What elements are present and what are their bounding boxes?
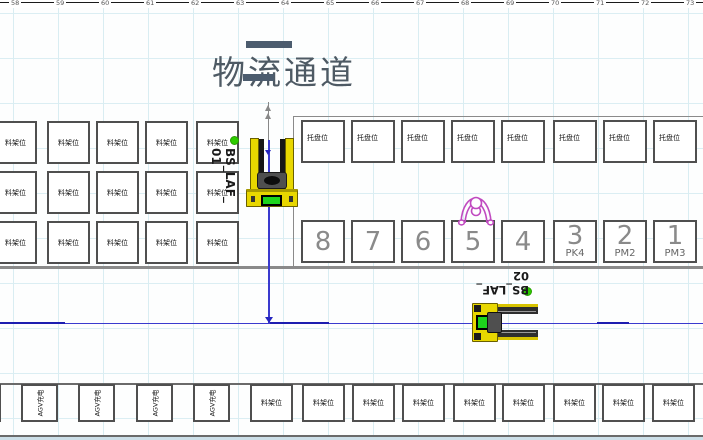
pallet-slot[interactable]: 托盘位 <box>351 120 395 163</box>
box-label: 料架位 <box>555 386 594 420</box>
fork-line <box>498 311 536 312</box>
box-label: 料架位 <box>98 123 137 162</box>
slot-content: 4 <box>503 222 543 261</box>
box-label: 料架位 <box>354 386 393 420</box>
stacker-machine-bs-laf-02[interactable] <box>472 302 538 343</box>
agv-charge-slot[interactable]: AGV充电 <box>136 384 173 422</box>
agv-charge-slot[interactable]: AGV充电 <box>0 384 1 422</box>
box-label: 托盘位 <box>407 133 428 143</box>
aisle-divider-line <box>0 266 703 269</box>
slot-content: 6 <box>403 222 443 261</box>
box-label: 托盘位 <box>659 133 680 143</box>
ruler-tick-64: 64 <box>279 0 291 7</box>
slot-number: 6 <box>415 230 432 254</box>
base-knob <box>251 196 255 202</box>
agv-charge-label: AGV充电 <box>149 390 159 417</box>
fork-line <box>498 332 536 333</box>
logistics-channel-title: 物流通道 <box>212 46 356 94</box>
operator-foot-left <box>459 220 465 225</box>
numbered-slot-7[interactable]: 7 <box>351 220 395 263</box>
slot-content: 2PM2 <box>605 222 645 261</box>
base-knob <box>289 196 293 202</box>
machine-label-bs-laf-02[interactable]: BS_LAF_ 02 <box>479 269 529 297</box>
machine-base <box>246 189 298 207</box>
box-label: 料架位 <box>147 123 186 162</box>
slot-number: 1 <box>667 224 684 248</box>
body-corner <box>474 305 481 312</box>
rack-slot[interactable]: 料架位 <box>96 121 139 164</box>
box-label: AGV充电 <box>138 386 171 420</box>
box-label: AGV充电 <box>195 386 228 420</box>
ruler-tick-66: 66 <box>369 0 381 7</box>
box-label: 托盘位 <box>307 133 328 143</box>
box-label: 料架位 <box>49 123 88 162</box>
box-label: 料架位 <box>304 386 343 420</box>
agv-path-segment <box>0 322 65 324</box>
box-label: 料架位 <box>252 386 291 420</box>
status-dot-bs-laf-01 <box>230 136 239 145</box>
stacker-machine-bs-laf-01[interactable] <box>246 102 298 207</box>
status-screen <box>261 195 282 206</box>
box-label: 托盘位 <box>559 133 580 143</box>
box-label: 料架位 <box>0 173 35 212</box>
conveyor-bar[interactable] <box>243 74 274 81</box>
box-label: 托盘位 <box>609 133 630 143</box>
pallet-slot[interactable]: 托盘位 <box>553 120 597 163</box>
agv-path-segment <box>268 322 329 324</box>
ruler-tick-63: 63 <box>234 0 246 7</box>
slot-number: 5 <box>465 230 482 254</box>
machine-label-bs-laf-01[interactable]: BS_LAF_ 01 <box>209 148 237 240</box>
ruler-tick-59: 59 <box>54 0 66 7</box>
rack-slot[interactable]: 料架位 <box>0 221 37 264</box>
rack-slot[interactable]: 料架位 <box>96 221 139 264</box>
box-label: 托盘位 <box>457 133 478 143</box>
pallet-slot[interactable]: 托盘位 <box>451 120 495 163</box>
box-label: 料架位 <box>98 223 137 262</box>
agv-charge-label: AGV充电 <box>206 390 216 417</box>
rack-slot[interactable]: 料架位 <box>47 121 90 164</box>
ruler-tick-68: 68 <box>459 0 471 7</box>
ruler-tick-58: 58 <box>9 0 21 7</box>
numbered-slot-4[interactable]: 4 <box>501 220 545 263</box>
body-corner <box>474 333 481 340</box>
rack-slot[interactable]: 料架位 <box>553 384 596 422</box>
box-label: 料架位 <box>0 123 35 162</box>
rack-slot[interactable]: 料架位 <box>352 384 395 422</box>
arrow-up-icon <box>265 113 271 119</box>
box-label: 料架位 <box>404 386 443 420</box>
rack-slot[interactable]: 料架位 <box>47 171 90 214</box>
fork-arm-top <box>496 304 538 314</box>
pallet-slot[interactable]: 托盘位 <box>301 120 345 163</box>
slot-number: 8 <box>315 230 332 254</box>
box-label: 料架位 <box>147 173 186 212</box>
pallet-slot[interactable]: 托盘位 <box>603 120 647 163</box>
box-label: 料架位 <box>49 223 88 262</box>
ruler-tick-61: 61 <box>144 0 156 7</box>
rack-slot[interactable]: 料架位 <box>145 171 188 214</box>
rack-slot[interactable]: 料架位 <box>47 221 90 264</box>
numbered-slot-1[interactable]: 1PM3 <box>653 220 697 263</box>
arrow-up-icon <box>265 105 271 111</box>
pallet-area-top-border <box>293 116 703 117</box>
box-label: 料架位 <box>98 173 137 212</box>
box-label: AGV充电 <box>80 386 113 420</box>
agv-charge-slot[interactable]: AGV充电 <box>193 384 230 422</box>
pallet-slot[interactable]: 托盘位 <box>401 120 445 163</box>
slot-number: 3 <box>567 224 584 248</box>
rack-slot[interactable]: 料架位 <box>250 384 293 422</box>
rack-slot[interactable]: 料架位 <box>302 384 345 422</box>
agv-charge-label: AGV充电 <box>34 390 44 417</box>
path-arrow-icon <box>265 317 273 323</box>
operator-head <box>471 198 482 209</box>
ruler-tick-72: 72 <box>639 0 651 7</box>
rack-slot[interactable]: 料架位 <box>652 384 695 422</box>
slot-sublabel: PK4 <box>566 249 585 259</box>
fork-arm-bottom <box>496 330 538 340</box>
rack-slot[interactable]: 料架位 <box>145 221 188 264</box>
rack-slot[interactable]: 料架位 <box>502 384 545 422</box>
slot-sublabel: PM3 <box>664 249 685 259</box>
box-label: 托盘位 <box>357 133 378 143</box>
slot-content: 7 <box>353 222 393 261</box>
box-label: 料架位 <box>654 386 693 420</box>
pallet-slot[interactable]: 托盘位 <box>653 120 697 163</box>
box-label: 料架位 <box>147 223 186 262</box>
layout-canvas: 58596061626364656667686970717273 物流通道 料架… <box>0 0 703 440</box>
slot-number: 2 <box>617 224 634 248</box>
gripper-clamp <box>487 312 502 333</box>
ruler-tick-65: 65 <box>324 0 336 7</box>
pallet-slot[interactable]: 托盘位 <box>501 120 545 163</box>
numbered-slot-8[interactable]: 8 <box>301 220 345 263</box>
agv-charge-slot[interactable]: AGV充电 <box>78 384 115 422</box>
slot-content: 3PK4 <box>555 222 595 261</box>
agv-path-segment <box>597 322 629 324</box>
slot-number: 4 <box>515 230 532 254</box>
box-label: 料架位 <box>604 386 643 420</box>
box-label: AGV充电 <box>23 386 56 420</box>
rack-slot[interactable]: 料架位 <box>402 384 445 422</box>
numbered-slot-6[interactable]: 6 <box>401 220 445 263</box>
agv-charge-label: AGV充电 <box>91 390 101 417</box>
operator-foot-right <box>488 220 494 225</box>
ruler-tick-60: 60 <box>99 0 111 7</box>
box-label: 料架位 <box>49 173 88 212</box>
rack-slot[interactable]: 料架位 <box>453 384 496 422</box>
agv-charge-slot[interactable]: AGV充电 <box>21 384 58 422</box>
ruler-tick-71: 71 <box>594 0 606 7</box>
rack-slot[interactable]: 料架位 <box>145 121 188 164</box>
agv-path-vertical <box>268 206 270 324</box>
numbered-slot-3[interactable]: 3PK4 <box>553 220 597 263</box>
rack-slot[interactable]: 料架位 <box>0 171 37 214</box>
horizontal-ruler: 58596061626364656667686970717273 <box>0 0 703 8</box>
clamp-opening <box>264 176 280 185</box>
slot-sublabel: PM2 <box>614 249 635 259</box>
box-label: 料架位 <box>455 386 494 420</box>
rack-slot[interactable]: 料架位 <box>602 384 645 422</box>
ruler-tick-69: 69 <box>504 0 516 7</box>
slot-content: 8 <box>303 222 343 261</box>
slot-number: 7 <box>365 230 382 254</box>
box-label: 料架位 <box>0 223 35 262</box>
box-label: 托盘位 <box>507 133 528 143</box>
ruler-tick-70: 70 <box>549 0 561 7</box>
operator-figure[interactable] <box>452 194 500 230</box>
rack-slot[interactable]: 料架位 <box>96 171 139 214</box>
ruler-tick-73: 73 <box>684 0 696 7</box>
box-label: 料架位 <box>504 386 543 420</box>
conveyor-bar[interactable] <box>246 41 292 48</box>
arrow-down-icon <box>265 150 271 155</box>
numbered-slot-2[interactable]: 2PM2 <box>603 220 647 263</box>
ruler-tick-62: 62 <box>189 0 201 7</box>
ruler-tick-67: 67 <box>414 0 426 7</box>
slot-content: 1PM3 <box>655 222 695 261</box>
gripper-clamp <box>257 172 287 189</box>
rack-slot[interactable]: 料架位 <box>0 121 37 164</box>
